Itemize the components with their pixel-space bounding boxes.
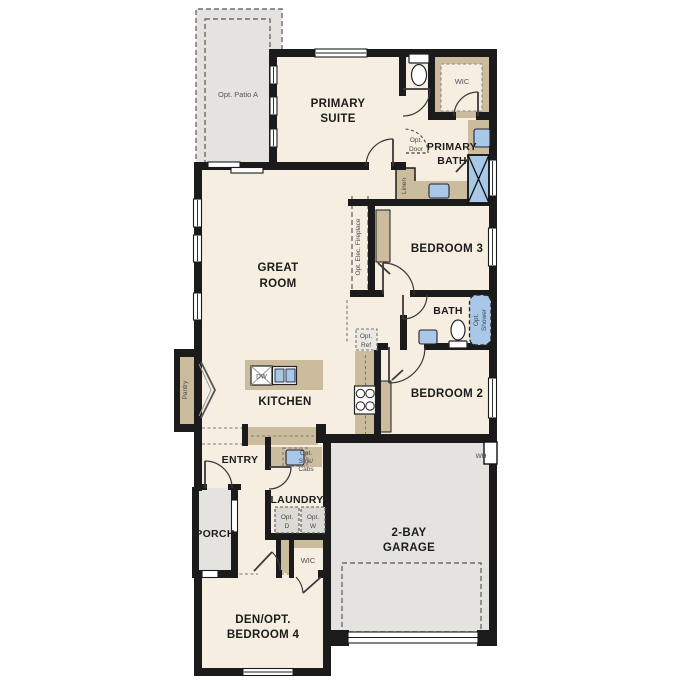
- label-linen: Linen: [401, 178, 408, 194]
- label-opt-sink-3: Cabs: [298, 466, 314, 473]
- label-primary-bath-2: BATH: [437, 155, 467, 167]
- floorplan-page: Opt. Patio A PRIMARY SUITE WIC PRIMARY B…: [0, 0, 687, 687]
- label-entry: ENTRY: [222, 454, 259, 466]
- label-porch: PORCH: [195, 528, 234, 540]
- label-opt-door-2: Door: [409, 146, 424, 153]
- primary-shower-icon: [468, 155, 489, 203]
- label-opt-sink-2: Sink/: [299, 458, 314, 465]
- den-side-window: [202, 571, 218, 578]
- label-opt-patio: Opt. Patio A: [218, 90, 258, 99]
- label-garage-1: 2-BAY: [392, 527, 427, 539]
- coat-closet: [281, 540, 289, 573]
- label-opt-w-1: Opt.: [307, 514, 319, 521]
- patio-sliding-door-panel-2: [231, 168, 263, 174]
- patio-sliding-door-panel-1: [208, 162, 240, 168]
- label-den-2: BEDROOM 4: [227, 629, 300, 641]
- label-opt-d-1: Opt.: [281, 514, 293, 521]
- label-opt-door-1: Opt.: [410, 137, 422, 144]
- label-opt-w-2: W: [310, 523, 317, 530]
- label-wic-den: WIC: [301, 556, 316, 565]
- label-primary-suite-1: PRIMARY: [311, 98, 366, 110]
- bath-toilet-icon: [451, 320, 465, 340]
- label-bedroom3: BEDROOM 3: [411, 243, 483, 255]
- primary-bath-sink-bottom-icon: [429, 184, 449, 198]
- primary-wic-inner: [441, 64, 482, 111]
- label-opt-ref-1: Opt.: [360, 333, 372, 340]
- label-opt-ref-2: Ref: [361, 342, 371, 349]
- label-pantry: Pantry: [182, 380, 189, 400]
- label-great-room-1: GREAT: [258, 262, 299, 274]
- label-bath: BATH: [433, 305, 463, 317]
- bath-toilet-tank: [449, 341, 467, 348]
- label-opt-fireplace: Opt. Elec. Fireplace: [355, 218, 362, 275]
- label-opt-d-2: D: [285, 523, 290, 530]
- label-bedroom2: BEDROOM 2: [411, 388, 483, 400]
- floorplan-drawing: Opt. Patio A PRIMARY SUITE WIC PRIMARY B…: [0, 0, 687, 687]
- bedroom3-closet: [376, 210, 390, 262]
- label-wh: WH: [476, 453, 487, 460]
- garage-area: [326, 437, 497, 643]
- label-garage-2: GARAGE: [383, 542, 435, 554]
- den-wic-shelf: [294, 540, 323, 548]
- label-laundry: LAUNDRY: [270, 494, 323, 506]
- label-opt-shower-1: Opt.: [473, 314, 480, 326]
- primary-toilet-icon: [412, 65, 427, 86]
- label-primary-suite-2: SUITE: [320, 113, 355, 125]
- label-primary-bath-1: PRIMARY: [427, 141, 477, 153]
- label-dw: DW: [256, 374, 268, 381]
- stove-icon: [355, 386, 376, 414]
- label-great-room-2: ROOM: [260, 278, 297, 290]
- label-den-1: DEN/OPT.: [235, 614, 290, 626]
- primary-toilet-tank: [409, 54, 429, 63]
- label-kitchen: KITCHEN: [258, 396, 311, 408]
- label-opt-shower-2: Shower: [481, 308, 488, 331]
- label-opt-sink-1: Opt.: [300, 450, 312, 457]
- bath-sink-icon: [419, 330, 437, 344]
- label-wic-primary: WIC: [455, 77, 470, 86]
